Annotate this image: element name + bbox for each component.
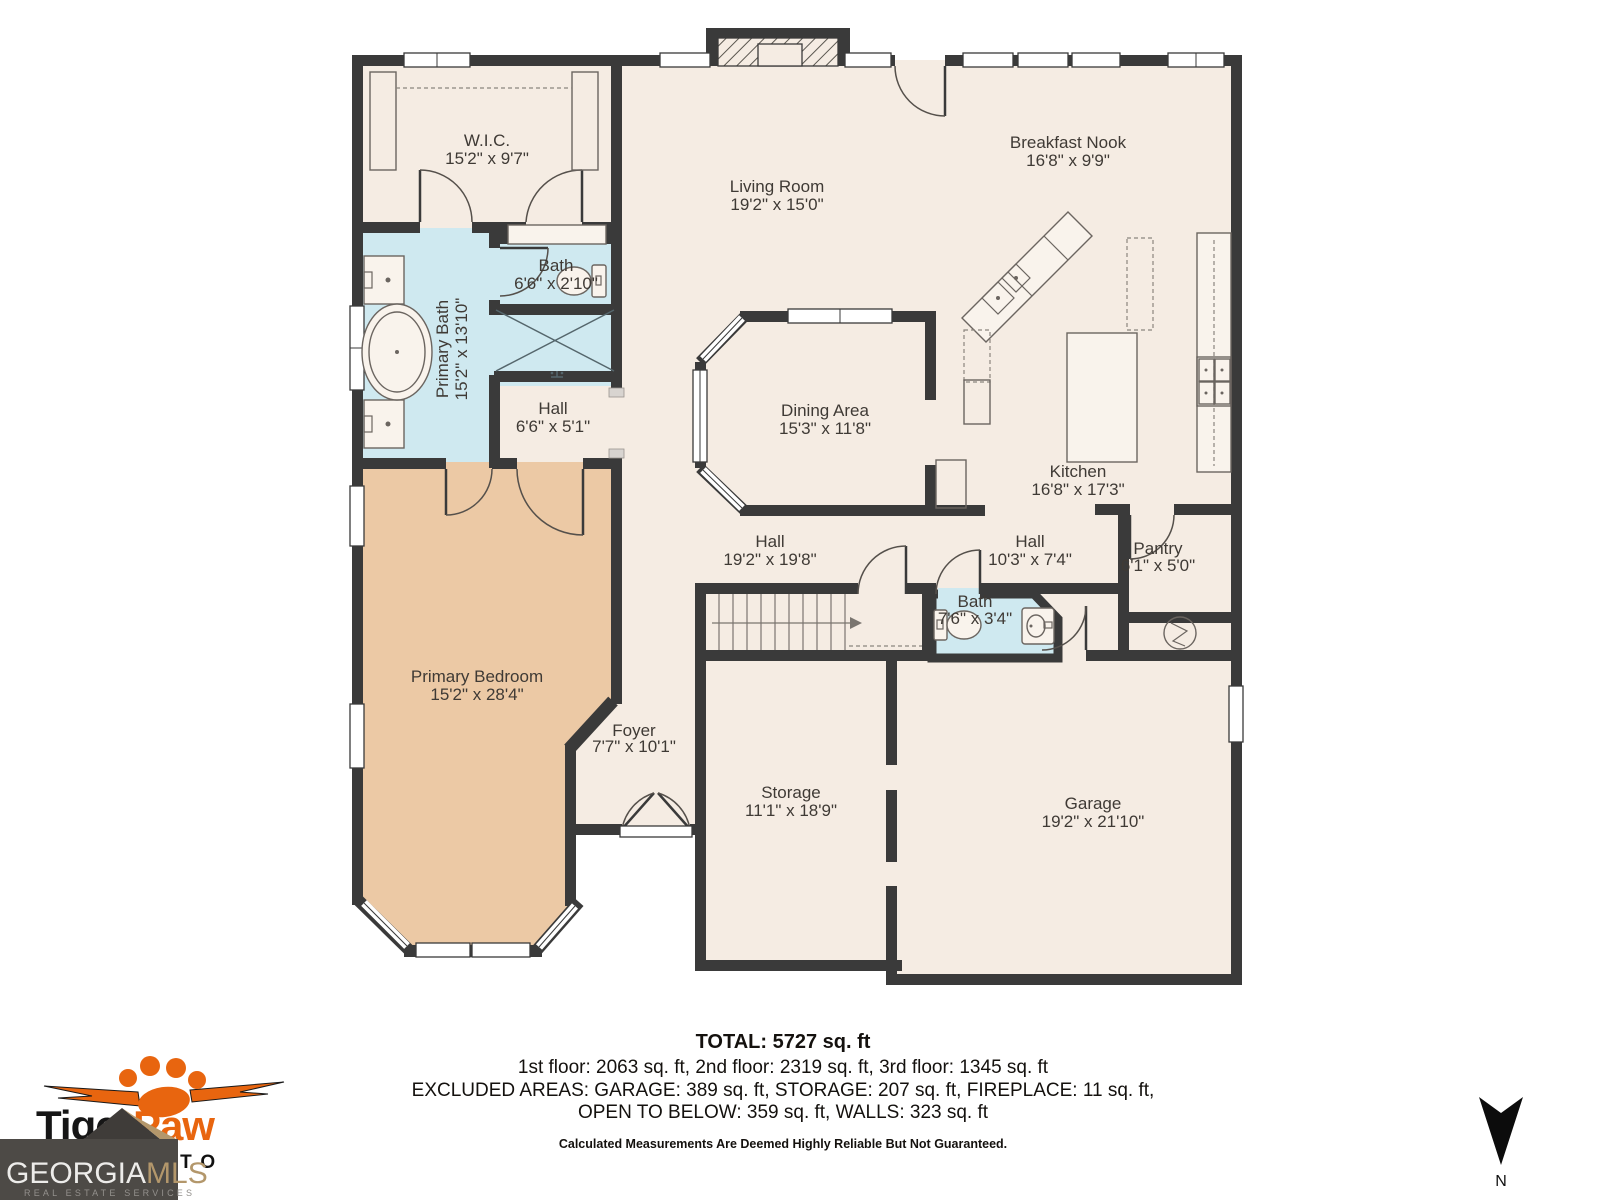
svg-text:7'7" x 10'1": 7'7" x 10'1"	[592, 737, 676, 756]
mls-subtext: REAL ESTATE SERVICES	[24, 1188, 195, 1198]
svg-text:16'8" x 17'3": 16'8" x 17'3"	[1031, 480, 1124, 499]
svg-text:Hall: Hall	[1015, 532, 1044, 551]
excluded-area-text-1: EXCLUDED AREAS: GARAGE: 389 sq. ft, STOR…	[412, 1080, 1155, 1101]
svg-text:19'2" x 15'0": 19'2" x 15'0"	[730, 195, 823, 214]
svg-text:Kitchen: Kitchen	[1050, 462, 1107, 481]
svg-text:Primary Bedroom: Primary Bedroom	[411, 667, 543, 686]
svg-text:15'2" x 9'7": 15'2" x 9'7"	[445, 149, 529, 168]
floor-plan-page: W.I.C. 15'2" x 9'7" Living Room 19'2" x …	[0, 0, 1600, 1200]
svg-text:6'6" x 2'10": 6'6" x 2'10"	[514, 274, 598, 293]
svg-text:Hall: Hall	[538, 399, 567, 418]
room-label-primary-bedroom: Primary Bedroom 15'2" x 28'4"	[411, 667, 543, 704]
cased-opening-jamb	[609, 388, 624, 397]
svg-text:11'1" x 18'9": 11'1" x 18'9"	[745, 801, 837, 820]
floors-area-text: 1st floor: 2063 sq. ft, 2nd floor: 2319 …	[518, 1057, 1049, 1078]
area-summary: TOTAL: 5727 sq. ft 1st floor: 2063 sq. f…	[412, 1031, 1155, 1151]
cased-opening-jamb	[609, 449, 624, 458]
room-label-breakfast-nook: Breakfast Nook 16'8" x 9'9"	[1010, 133, 1127, 170]
svg-text:Storage: Storage	[761, 783, 821, 802]
disclaimer-text: Calculated Measurements Are Deemed Highl…	[559, 1137, 1007, 1151]
georgia-text: GEORGIA	[6, 1157, 146, 1190]
linen-niche	[508, 225, 606, 244]
room-label-living-room: Living Room 19'2" x 15'0"	[730, 177, 825, 214]
svg-text:Garage: Garage	[1065, 794, 1122, 813]
svg-text:Primary Bath: Primary Bath	[433, 300, 452, 398]
mls-text: MLS	[146, 1157, 208, 1190]
svg-text:15'2" x 13'10": 15'2" x 13'10"	[452, 298, 471, 401]
svg-text:10'3" x 7'4": 10'3" x 7'4"	[988, 550, 1072, 569]
room-label-primary-bath: Primary Bath 15'2" x 13'10"	[433, 298, 471, 401]
excluded-area-text-2: OPEN TO BELOW: 359 sq. ft, WALLS: 323 sq…	[578, 1102, 989, 1123]
svg-text:19'2" x 21'10": 19'2" x 21'10"	[1042, 812, 1145, 831]
floor-plan-canvas: W.I.C. 15'2" x 9'7" Living Room 19'2" x …	[0, 0, 1600, 1200]
svg-text:Living Room: Living Room	[730, 177, 825, 196]
mls-wordmark: GEORGIAMLS	[6, 1157, 208, 1190]
svg-text:6'6" x 5'1": 6'6" x 5'1"	[516, 417, 590, 436]
total-area-text: TOTAL: 5727 sq. ft	[696, 1031, 871, 1053]
svg-text:Dining Area: Dining Area	[781, 401, 869, 420]
north-arrow-icon	[1479, 1097, 1523, 1165]
svg-text:Breakfast Nook: Breakfast Nook	[1010, 133, 1127, 152]
svg-text:15'2" x 28'4": 15'2" x 28'4"	[430, 685, 523, 704]
room-label-dining-area: Dining Area 15'3" x 11'8"	[779, 401, 871, 438]
svg-text:Bath: Bath	[539, 256, 574, 275]
svg-text:19'2" x 19'8": 19'2" x 19'8"	[723, 550, 816, 569]
svg-text:6'1" x 5'0": 6'1" x 5'0"	[1121, 556, 1195, 575]
svg-text:W.I.C.: W.I.C.	[464, 131, 510, 150]
svg-text:15'3" x 11'8": 15'3" x 11'8"	[779, 419, 871, 438]
north-label: N	[1495, 1173, 1507, 1190]
svg-text:7'6" x 3'4": 7'6" x 3'4"	[938, 609, 1012, 628]
kitchen-island	[1067, 333, 1137, 462]
compass: N	[1479, 1097, 1523, 1190]
svg-text:Hall: Hall	[755, 532, 784, 551]
svg-text:16'8" x 9'9": 16'8" x 9'9"	[1026, 151, 1110, 170]
vanity-sink-icon	[364, 400, 404, 448]
vanity-sink-icon	[364, 256, 404, 304]
